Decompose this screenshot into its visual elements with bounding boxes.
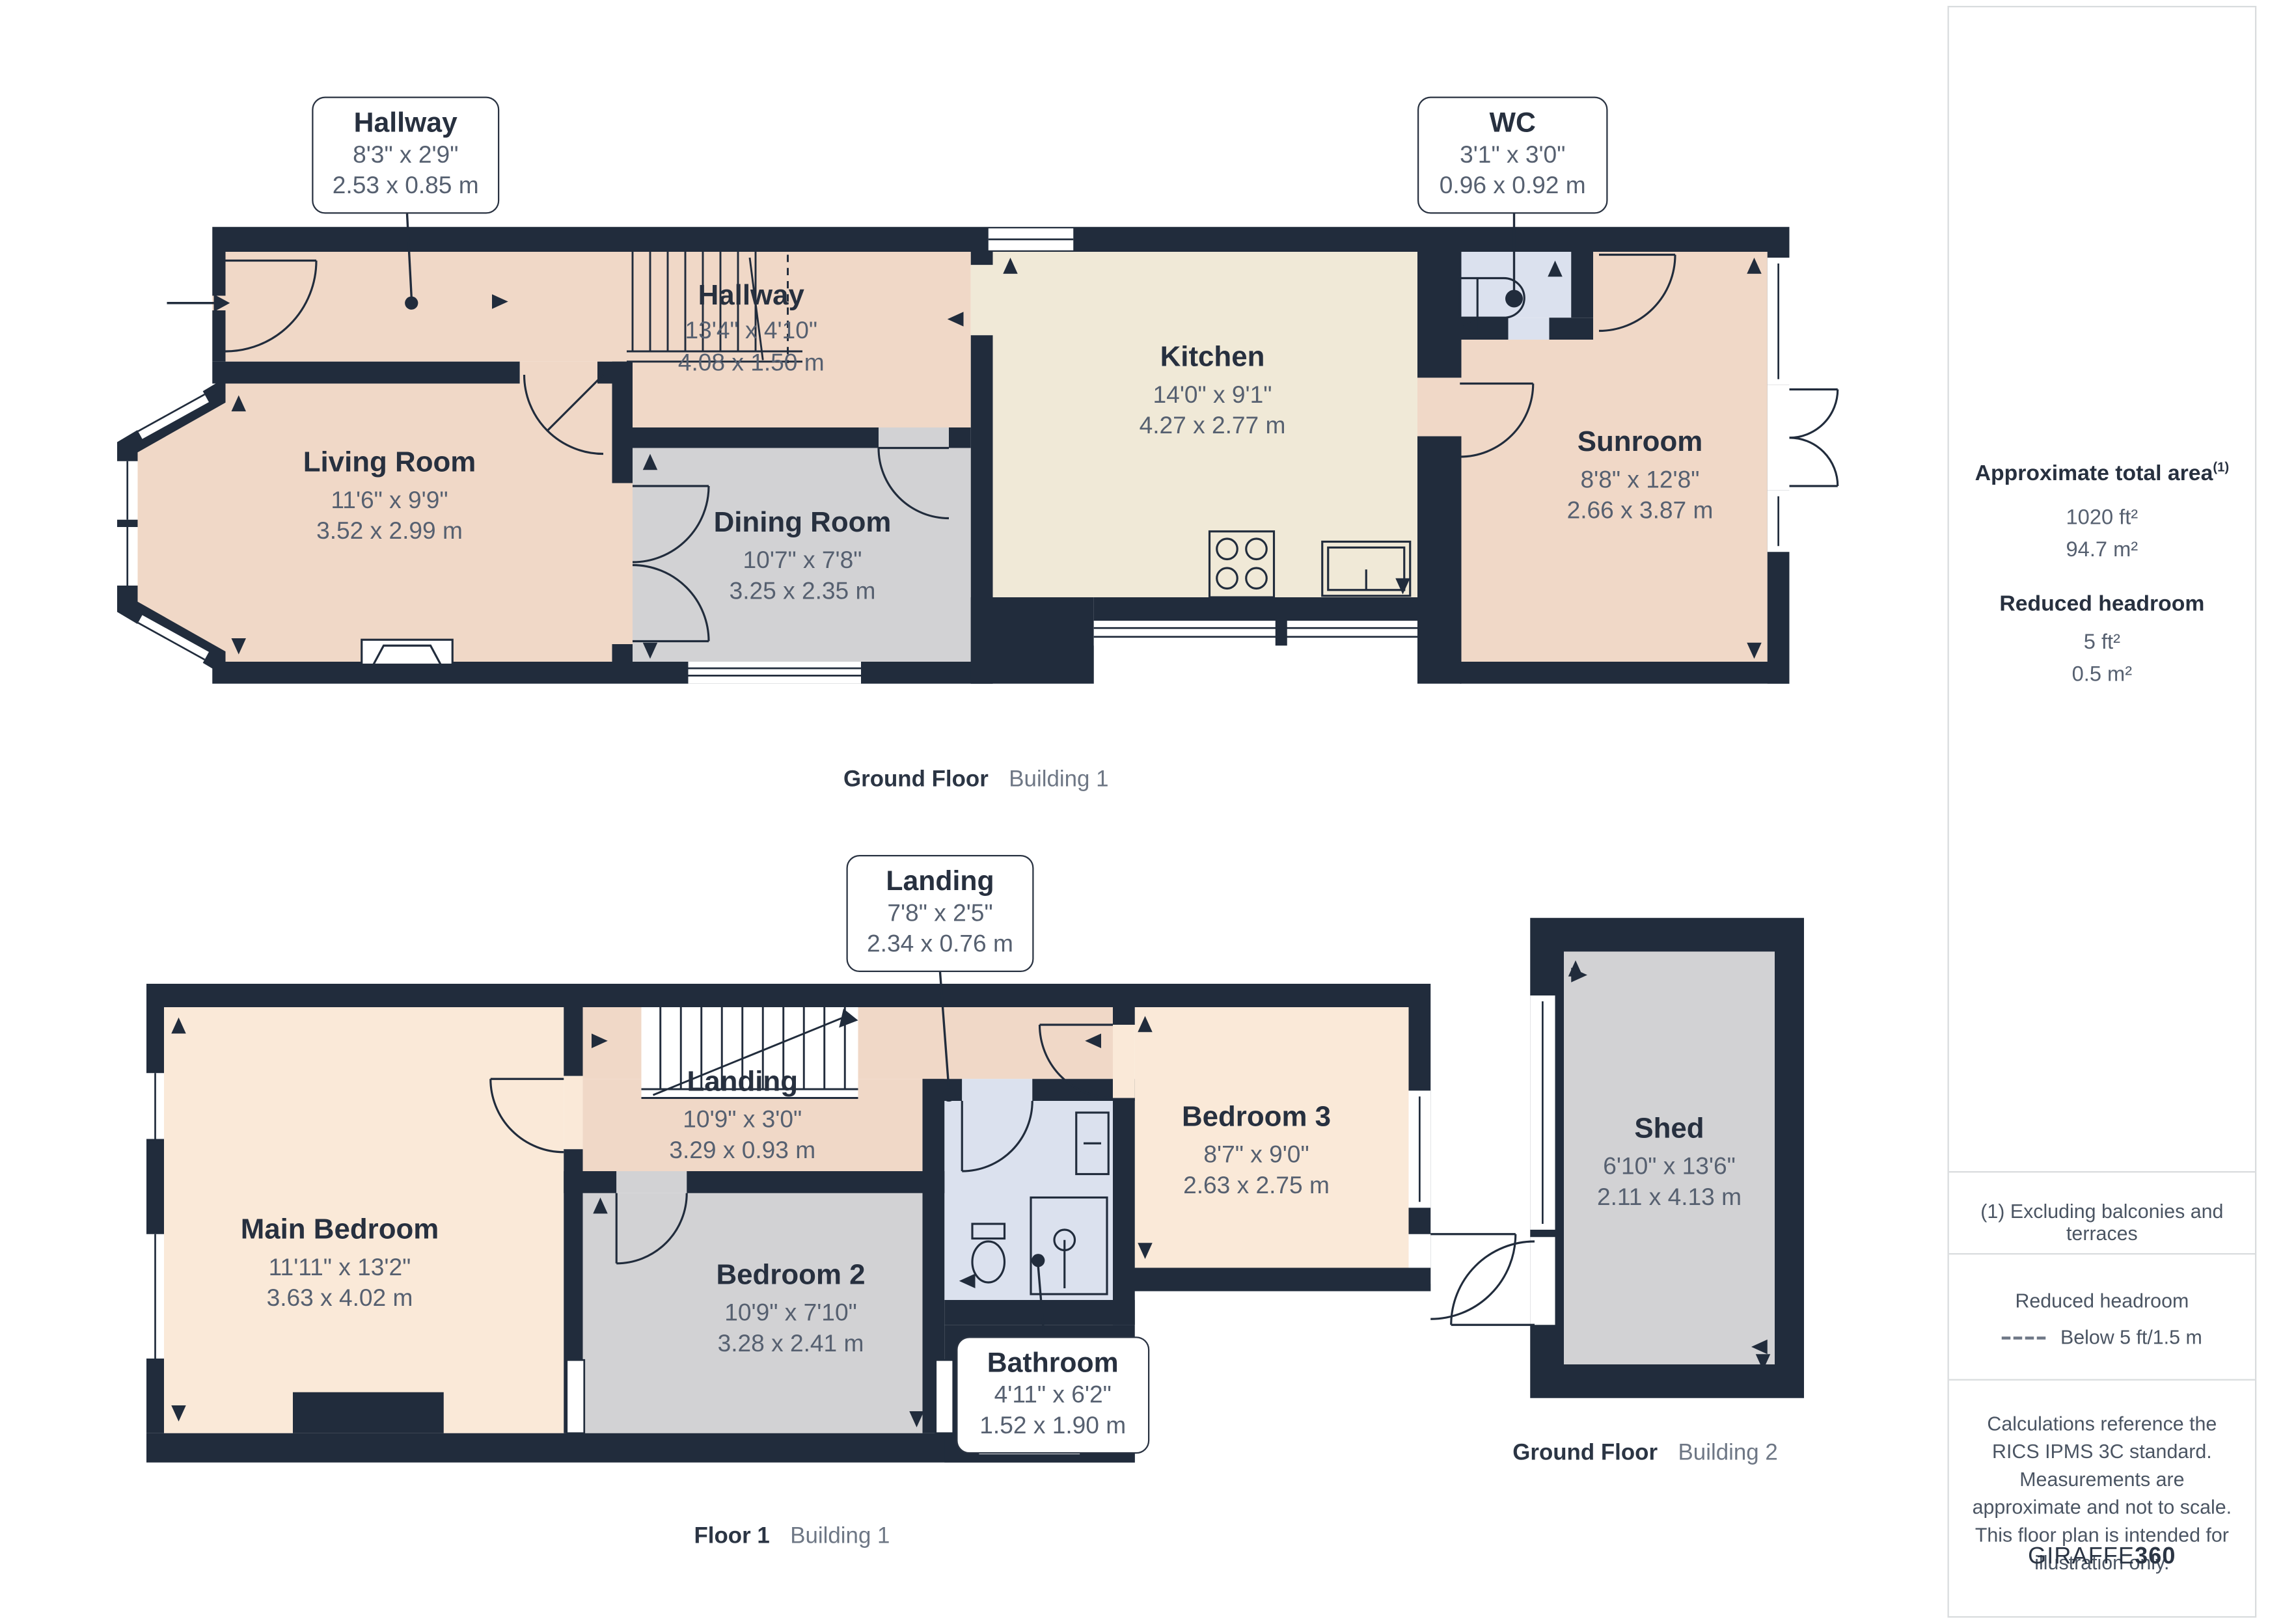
- landing-callout-dot: [942, 1089, 955, 1102]
- label-ground-floor-building1: Ground Floor Building 1: [843, 767, 1108, 794]
- room-label-hallway: Hallway: [698, 279, 805, 311]
- legend-title: Reduced headroom: [1949, 1290, 2255, 1312]
- label-ground-floor-building2: Ground Floor Building 2: [1512, 1441, 1777, 1467]
- reduced-headroom-title: Reduced headroom: [1949, 591, 2255, 618]
- callout-metric: 2.53 x 0.85 m: [314, 171, 499, 202]
- room-label-living: Living Room: [303, 446, 476, 478]
- reduced-headroom-dash-icon: [2002, 1336, 2046, 1339]
- room-label-shed: Shed: [1634, 1112, 1704, 1144]
- wc-callout-dot: [1505, 290, 1523, 308]
- callout-imperial: 4'11" x 6'2": [958, 1381, 1149, 1411]
- callout-bathroom: Bathroom 4'11" x 6'2" 1.52 x 1.90 m: [956, 1336, 1149, 1454]
- room-dim: 11'6" x 9'9": [331, 486, 448, 513]
- reduced-headroom-title-text: Reduced headroom: [1999, 591, 2204, 616]
- room-dim: 10'7" x 7'8": [743, 546, 862, 573]
- building-name: Building 2: [1678, 1441, 1778, 1467]
- reduced-headroom-m: 0.5 m²: [1949, 659, 2255, 692]
- footnote-balconies: (1) Excluding balconies and terraces: [1949, 1200, 2255, 1245]
- room-dim: 11'11" x 13'2": [269, 1253, 411, 1280]
- room-dim: 3.25 x 2.35 m: [730, 576, 876, 604]
- sidebar-divider: [1949, 1379, 2255, 1381]
- room-dim: 10'9" x 3'0": [683, 1105, 802, 1133]
- reduced-headroom-ft: 5 ft²: [1949, 627, 2255, 659]
- room-label-kitchen: Kitchen: [1160, 341, 1265, 373]
- callout-imperial: 8'3" x 2'9": [314, 141, 499, 171]
- building-name: Building 1: [1009, 767, 1108, 794]
- room-label-landing: Landing: [687, 1065, 798, 1097]
- callout-imperial: 3'1" x 3'0": [1419, 141, 1606, 171]
- room-label-main-bedroom: Main Bedroom: [241, 1213, 439, 1245]
- room-dim: 14'0" x 9'1": [1153, 381, 1272, 408]
- room-dim: 10'9" x 7'10": [724, 1299, 857, 1326]
- callout-metric: 1.52 x 1.90 m: [958, 1411, 1149, 1442]
- legend-value: Below 5 ft/1.5 m: [2060, 1327, 2202, 1349]
- room-dim: 3.29 x 0.93 m: [669, 1136, 815, 1163]
- total-area-title: Approximate total area(1): [1949, 460, 2255, 488]
- room-dim: 13'4" x 4'10": [685, 316, 817, 344]
- room-dim: 8'7" x 9'0": [1203, 1141, 1309, 1168]
- total-area-title-text: Approximate total area: [1975, 461, 2213, 486]
- room-dim: 8'8" x 12'8": [1581, 465, 1700, 493]
- room-dim: 3.28 x 2.41 m: [718, 1329, 864, 1357]
- bathroom-callout-dot: [1032, 1254, 1045, 1267]
- legend-row: Below 5 ft/1.5 m: [1949, 1327, 2255, 1349]
- logo-360: 360: [2135, 1545, 2176, 1569]
- callout-title: WC: [1419, 109, 1606, 141]
- room-label-sunroom: Sunroom: [1578, 426, 1702, 457]
- room-dim: 3.63 x 4.02 m: [267, 1284, 413, 1311]
- room-dim: 2.66 x 3.87 m: [1567, 496, 1714, 524]
- callout-title: Hallway: [314, 109, 499, 141]
- callout-imperial: 7'8" x 2'5": [848, 899, 1033, 930]
- room-dim: 3.52 x 2.99 m: [316, 517, 463, 544]
- room-label-bedroom3: Bedroom 3: [1182, 1100, 1331, 1132]
- callout-metric: 2.34 x 0.76 m: [848, 930, 1033, 960]
- room-dim: 6'10" x 13'6": [1603, 1152, 1736, 1180]
- floorplan-page: Hallway 13'4" x 4'10" 4.08 x 1.50 m Livi…: [0, 0, 2296, 1623]
- callout-landing: Landing 7'8" x 2'5" 2.34 x 0.76 m: [847, 855, 1034, 972]
- plan-ground-floor-building2: Shed 6'10" x 13'6" 2.11 x 4.13 m: [1451, 918, 1804, 1398]
- room-dim: 4.27 x 2.77 m: [1140, 411, 1286, 439]
- giraffe360-logo: GIRAFFE360: [1949, 1545, 2255, 1571]
- room-label-dining: Dining Room: [714, 506, 892, 538]
- total-area-ft: 1020 ft²: [1949, 502, 2255, 535]
- room-dim: 2.11 x 4.13 m: [1597, 1183, 1742, 1210]
- callout-title: Bathroom: [958, 1348, 1149, 1381]
- sidebar-divider: [1949, 1253, 2255, 1254]
- floor-name: Ground Floor: [1512, 1441, 1658, 1467]
- callout-title: Landing: [848, 867, 1033, 899]
- callout-metric: 0.96 x 0.92 m: [1419, 171, 1606, 202]
- callout-hallway: Hallway 8'3" x 2'9" 2.53 x 0.85 m: [312, 97, 499, 214]
- footnote-marker: (1): [2213, 460, 2229, 475]
- total-area-m: 94.7 m²: [1949, 534, 2255, 567]
- plan-ground-floor-building1: Hallway 13'4" x 4'10" 4.08 x 1.50 m Livi…: [117, 214, 1838, 684]
- room-dim: 2.63 x 2.75 m: [1183, 1171, 1330, 1198]
- label-floor1-building1: Floor 1 Building 1: [694, 1524, 890, 1550]
- floor-name: Floor 1: [694, 1524, 770, 1550]
- logo-giraffe: GIRAFFE: [2028, 1545, 2135, 1569]
- floor-name: Ground Floor: [843, 767, 989, 794]
- room-label-bedroom2: Bedroom 2: [716, 1258, 865, 1290]
- room-dim: 4.08 x 1.50 m: [678, 348, 825, 375]
- sidebar-divider: [1949, 1171, 2255, 1172]
- callout-wc: WC 3'1" x 3'0" 0.96 x 0.92 m: [1417, 97, 1608, 214]
- plan-floor1-building1: Main Bedroom 11'11" x 13'2" 3.63 x 4.02 …: [146, 972, 1516, 1463]
- hallway-callout-dot: [405, 297, 418, 310]
- building-name: Building 1: [790, 1524, 890, 1550]
- info-sidebar: Approximate total area(1) 1020 ft² 94.7 …: [1948, 6, 2257, 1617]
